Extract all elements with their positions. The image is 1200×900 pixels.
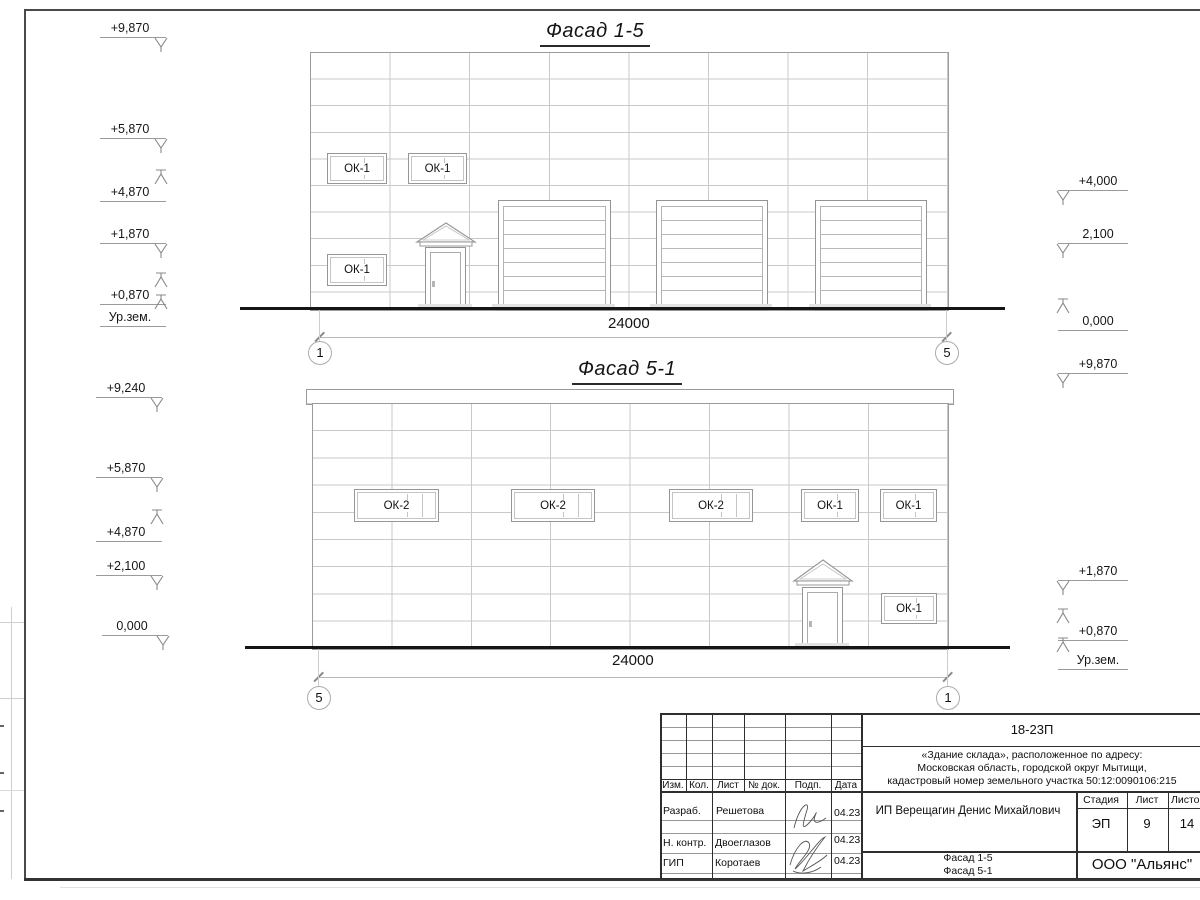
window-ok1: ОК-1	[801, 489, 859, 522]
tb-col-izm: Изм.	[662, 780, 683, 791]
tb-sheet-title: Фасад 5-1	[943, 865, 992, 877]
door-leaf	[807, 592, 838, 647]
filing-strip-tick	[0, 698, 24, 699]
tb-role: ГИП	[663, 857, 684, 869]
elevation-mark: +9,240	[96, 381, 162, 398]
facade-bottom-wall	[312, 403, 949, 650]
drawing-sheet: Фасад 1-5 ОК-1 ОК-1 ОК-1 24000 1 5 +9,87…	[0, 0, 1200, 900]
elevation-mark: +1,870	[100, 227, 166, 244]
elevation-mark: +4,870	[100, 185, 166, 202]
elevation-mark: 0,000	[102, 619, 168, 636]
tb-sheets-value: 14	[1180, 816, 1194, 831]
window-label: ОК-1	[341, 264, 373, 276]
elevation-mark-ground: Ур.зем.	[1058, 653, 1128, 670]
frame-top	[24, 9, 1200, 11]
tb-stage-value: ЭП	[1092, 816, 1111, 831]
tb-address-line: кадастровый номер земельного участка 50:…	[887, 775, 1176, 787]
dimension-text: 24000	[612, 652, 654, 669]
tb-col-data: Дата	[835, 780, 857, 791]
entrance-door	[802, 587, 843, 649]
tb-name: Коротаев	[715, 857, 760, 869]
filing-strip-tick	[0, 622, 24, 623]
elevation-mark: +9,870	[1058, 357, 1128, 374]
filing-strip-label-stub	[0, 725, 4, 727]
tb-address-line: Московская область, городской округ Мыти…	[917, 762, 1146, 774]
tb-col-ndok: № док.	[748, 780, 780, 791]
tb-date: 04.23	[834, 807, 860, 819]
tb-role: Н. контр.	[663, 837, 706, 849]
facade-bottom-title: Фасад 5-1	[572, 358, 682, 385]
window-label: ОК-1	[814, 500, 846, 512]
tb-date: 04.23	[834, 855, 860, 867]
tb-sheet-value: 9	[1143, 816, 1150, 831]
gate-slats	[503, 206, 606, 307]
elevation-mark: +4,870	[96, 525, 162, 542]
tb-sheets-label: Листов	[1171, 794, 1200, 806]
gate-slats	[661, 206, 763, 307]
axis-leader	[947, 649, 948, 686]
tb-name: Решетова	[716, 805, 764, 817]
ground-line-bottom	[245, 646, 1010, 649]
tb-client: ИП Верещагин Денис Михайлович	[876, 805, 1061, 817]
window-label: ОК-1	[893, 603, 925, 615]
axis-bubble: 1	[936, 686, 960, 710]
tb-col-list: Лист	[717, 780, 739, 791]
sectional-gate	[656, 200, 768, 311]
window-label: ОК-1	[422, 163, 454, 175]
axis-bubble: 5	[935, 341, 959, 365]
axis-leader	[318, 649, 319, 686]
window-ok1: ОК-1	[880, 489, 937, 522]
window-ok1: ОК-1	[327, 153, 387, 184]
elevation-mark: +5,870	[96, 461, 162, 478]
door-pediment	[415, 221, 477, 248]
elevation-mark: +9,870	[100, 21, 166, 38]
elevation-mark: 0,000	[1058, 314, 1128, 331]
page-edge-shadow	[60, 887, 1200, 888]
dimension-text: 24000	[608, 315, 650, 332]
gate-slats	[820, 206, 922, 307]
window-label: ОК-2	[537, 500, 569, 512]
window-label: ОК-2	[381, 500, 413, 512]
tb-sheet-label: Лист	[1136, 794, 1159, 806]
window-ok1: ОК-1	[881, 593, 937, 624]
frame-left	[24, 9, 26, 880]
tb-address-line: «Здание склада», расположенное по адресу…	[922, 749, 1143, 761]
door-handle	[809, 621, 812, 627]
axis-bubble: 5	[307, 686, 331, 710]
axis-leader	[946, 310, 947, 341]
door-leaf	[430, 252, 461, 308]
elevation-mark-ground: Ур.зем.	[100, 310, 166, 327]
filing-strip-label-stub	[0, 772, 4, 774]
window-label: ОК-2	[695, 500, 727, 512]
dimension-line	[319, 337, 946, 338]
axis-bubble: 1	[308, 341, 332, 365]
tb-stage-label: Стадия	[1083, 794, 1119, 806]
dimension-line	[318, 677, 947, 678]
filing-strip-label-stub	[0, 810, 4, 812]
tb-name: Двоеглазов	[715, 837, 771, 849]
sectional-gate	[815, 200, 927, 311]
door-pediment	[792, 558, 854, 587]
facade-top-title: Фасад 1-5	[540, 20, 650, 47]
filing-strip-line	[11, 607, 12, 879]
window-ok1: ОК-1	[327, 254, 387, 286]
tb-sheet-title: Фасад 1-5	[943, 852, 992, 864]
window-ok2: ОК-2	[354, 489, 439, 522]
tb-col-kol: Кол.	[689, 780, 709, 791]
tb-company: ООО "Альянс"	[1092, 856, 1192, 873]
window-ok2: ОК-2	[511, 489, 595, 522]
elevation-mark: 2,100	[1058, 227, 1128, 244]
ground-line-top	[240, 307, 1005, 310]
elevation-mark: +5,870	[100, 122, 166, 139]
tb-doc-number: 18-23П	[1011, 722, 1054, 737]
window-label: ОК-1	[341, 163, 373, 175]
tb-date: 04.23	[834, 834, 860, 846]
tb-col-podp: Подп.	[795, 780, 822, 791]
axis-leader	[319, 310, 320, 341]
window-label: ОК-1	[893, 500, 925, 512]
door-handle	[432, 281, 435, 287]
entrance-door	[425, 247, 466, 310]
title-block: Изм. Кол. Лист № док. Подп. Дата Разраб.…	[660, 713, 1200, 879]
filing-strip-tick	[0, 790, 24, 791]
elevation-mark: +2,100	[96, 559, 162, 576]
window-ok1: ОК-1	[408, 153, 467, 184]
elevation-mark: +1,870	[1058, 564, 1128, 581]
elevation-mark: +4,000	[1058, 174, 1128, 191]
tb-role: Разраб.	[663, 805, 701, 817]
sectional-gate	[498, 200, 611, 311]
window-ok2: ОК-2	[669, 489, 753, 522]
signature-scribble	[785, 831, 831, 877]
